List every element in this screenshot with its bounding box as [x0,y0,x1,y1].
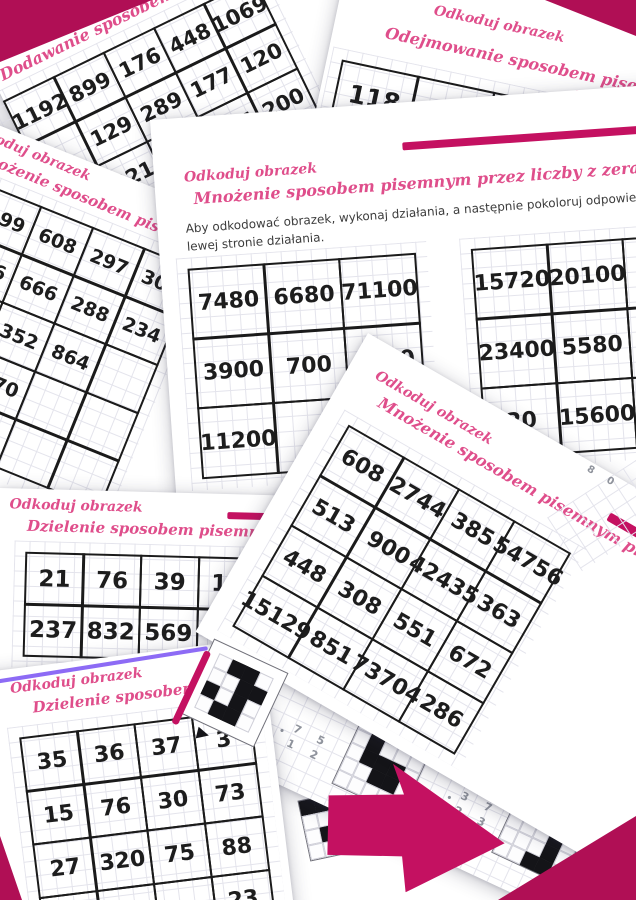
grid-cell: 76 [81,553,142,609]
grid-cell: 21 [24,552,85,608]
sheet-title-odkoduj: Odkoduj obrazek [9,496,142,515]
multiplication-problem: • 7 5 1 2 [273,717,333,766]
grid-cell: 6680 [263,258,346,335]
grid-row: 23400558078 [477,303,636,388]
grid-cell: 5580 [551,308,634,385]
instruction-fragment-column: obdziałapokolorkwadrat wpo lewejdziała [581,595,636,759]
grid-cell: 39 [139,555,200,611]
multiply-dot-icon: • [277,725,286,736]
grid-cell: 3900 [192,333,275,410]
grid-cell: 237 [22,603,83,659]
grid-cell: 15600 [556,377,636,454]
grid-cell: 15720 [471,243,554,320]
worksheet-collage: Odkoduj obrazek Dodawanie sposobem pisem… [0,0,636,900]
grid-row: 1572020100195 [472,234,636,319]
grid-cell: 832 [80,605,141,661]
grid-cell: 23400 [475,313,558,390]
grid-cell: 71100 [338,253,421,330]
pink-accent-bar [402,122,636,150]
grid-cell: 20100 [546,238,629,315]
grid-cell: 11200 [197,402,280,479]
grid-cell: 7480 [187,263,270,340]
